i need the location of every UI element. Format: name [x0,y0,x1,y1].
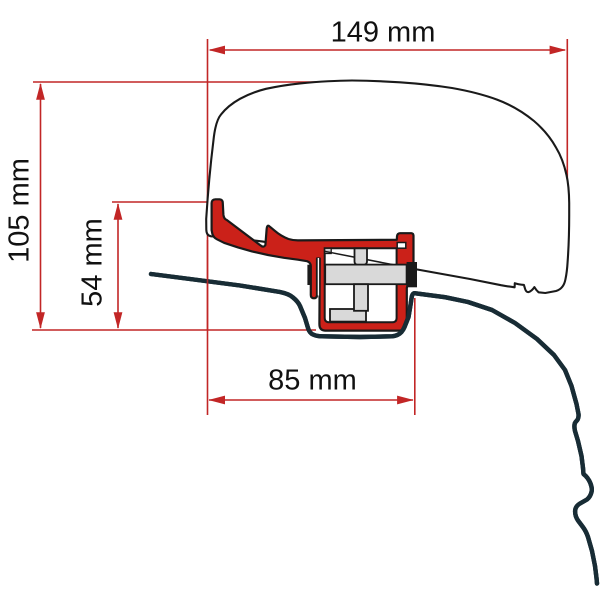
svg-text:105 mm: 105 mm [4,158,36,263]
svg-text:149 mm: 149 mm [331,17,436,49]
svg-text:85 mm: 85 mm [268,365,357,397]
svg-text:54 mm: 54 mm [77,218,109,307]
